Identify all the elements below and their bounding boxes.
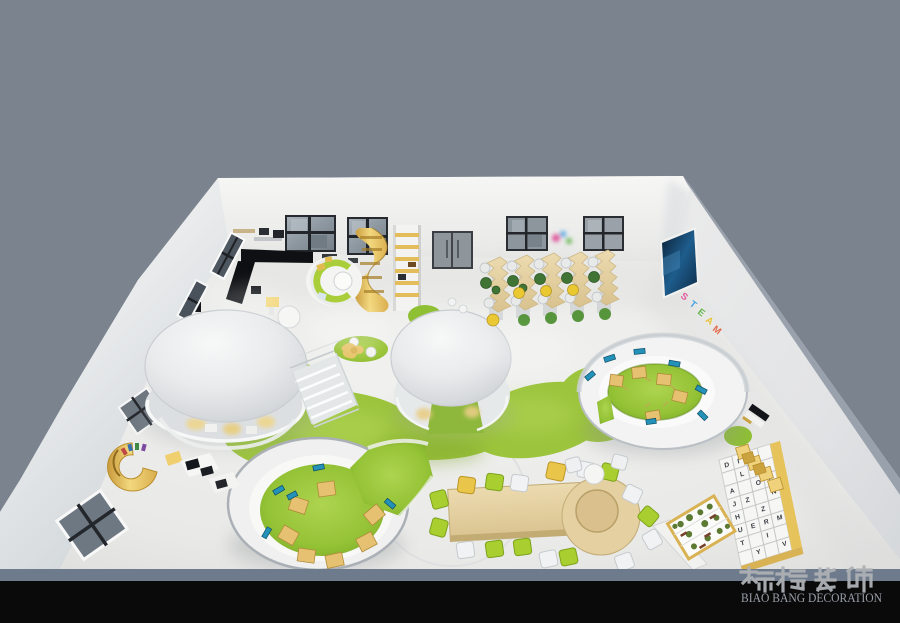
svg-text:BIAO BANG DECORATION: BIAO BANG DECORATION xyxy=(741,591,882,605)
